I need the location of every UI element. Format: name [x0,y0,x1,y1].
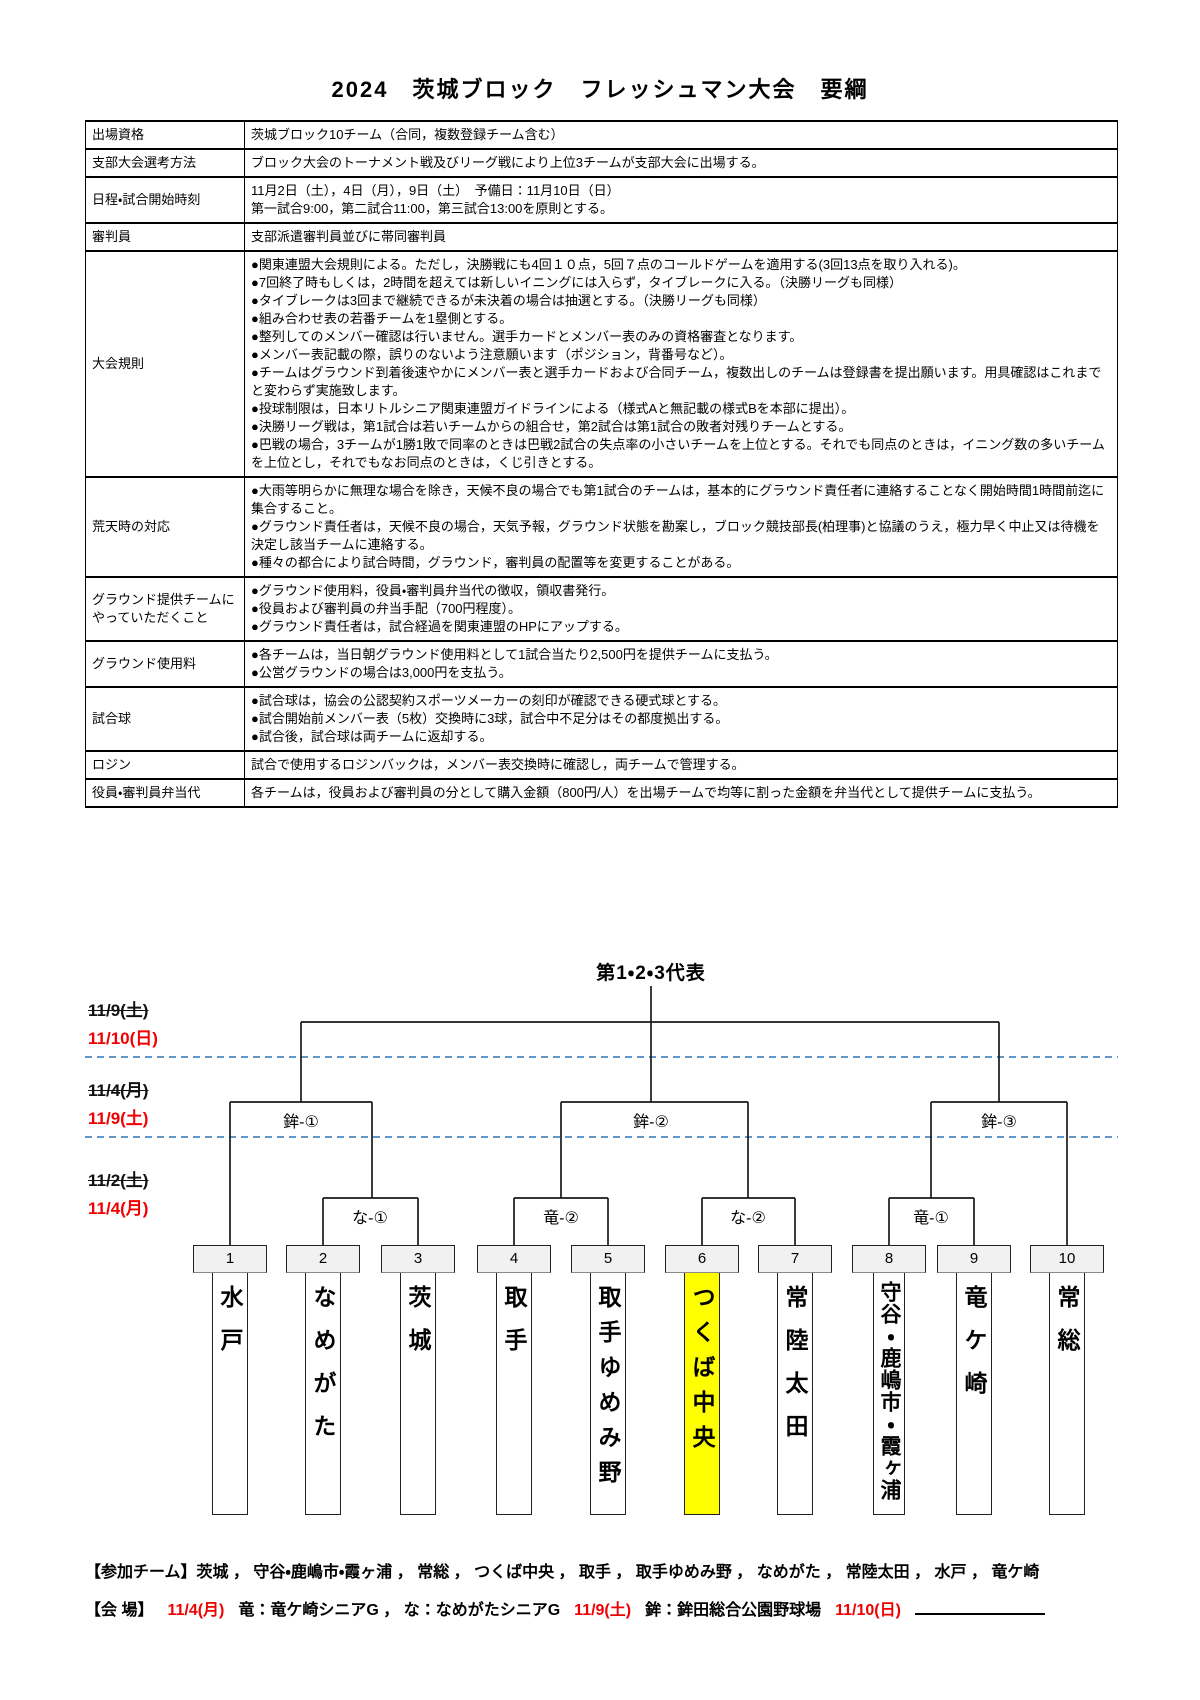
team-column-9: 9竜ケ崎 [937,1245,1011,1515]
row-content: 11月2日（土），4日（月），9日（土） 予備日：11月10日（日）第一試合9:… [245,177,1118,223]
row-label: グラウンド使用料 [86,641,245,687]
row-label: 役員・審判員弁当代 [86,779,245,807]
team-column-3: 3茨城 [381,1245,455,1515]
team-number: 7 [758,1245,832,1273]
row-label: グラウンド提供チームにやっていただくこと [86,577,245,641]
team-column-4: 4取手 [477,1245,551,1515]
page-title: 2024 茨城ブロック フレッシュマン大会 要綱 [0,72,1200,104]
row-label: 審判員 [86,223,245,251]
row-content: ●各チームは，当日朝グラウンド使用料として1試合当たり2,500円を提供チームに… [245,641,1118,687]
row-label: 試合球 [86,687,245,751]
venue-blank-line [915,1599,1045,1615]
rules-table: 出場資格茨城ブロック10チーム（合同，複数登録チーム含む）支部大会選考方法ブロッ… [85,120,1118,808]
row-content: ●関東連盟大会規則による。ただし，決勝戦にも4回１０点，5回７点のコールドゲーム… [245,251,1118,477]
round-date-new: 11/9(土) [88,1104,148,1129]
row-label: 荒天時の対応 [86,477,245,577]
team-column-5: 5取手ゆめみ野 [571,1245,645,1515]
row-content: 支部派遣審判員並びに帯同審判員 [245,223,1118,251]
round-date-old: 11/2(土) [88,1166,148,1191]
round-date-new: 11/4(月) [88,1194,148,1219]
table-row: グラウンド提供チームにやっていただくこと●グラウンド使用料，役員・審判員弁当代の… [86,577,1118,641]
team-column-7: 7常陸太田 [758,1245,832,1515]
venues-line: 【会 場】11/4(月)竜：竜ケ崎シニアG ， な：なめがたシニアG11/9(土… [85,1596,1165,1620]
table-row: グラウンド使用料●各チームは，当日朝グラウンド使用料として1試合当たり2,500… [86,641,1118,687]
team-number: 9 [937,1245,1011,1273]
row-label: 支部大会選考方法 [86,149,245,177]
participants-text: 茨城 ， 守谷・鹿嶋市・霞ヶ浦 ， 常総 ， つくば中央 ， 取手 ， 取手ゆめ… [197,1564,1040,1581]
team-number: 10 [1030,1245,1104,1273]
team-name: 取手ゆめみ野 [590,1273,626,1515]
row-content: 茨城ブロック10チーム（合同，複数登録チーム含む） [245,121,1118,149]
team-name: 守谷・鹿嶋市・霞ヶ浦 [873,1273,905,1515]
row-content: 各チームは，役員および審判員の分として購入金額（800円/人）を出場チームで均等… [245,779,1118,807]
row-content: 試合で使用するロジンバックは，メンバー表交換時に確認し，両チームで管理する。 [245,751,1118,779]
content-line: 各チームは，役員および審判員の分として購入金額（800円/人）を出場チームで均等… [251,784,1111,802]
table-row: 試合球●試合球は，協会の公認契約スポーツメーカーの刻印が確認できる硬式球とする。… [86,687,1118,751]
content-line: ●メンバー表記載の際，誤りのないよう注意願います（ポジション，背番号など）。 [251,346,1111,364]
participants-line: 【参加チーム】茨城 ， 守谷・鹿嶋市・霞ヶ浦 ， 常総 ， つくば中央 ， 取手… [85,1558,1165,1582]
table-row: ロジン試合で使用するロジンバックは，メンバー表交換時に確認し，両チームで管理する… [86,751,1118,779]
team-column-1: 1水戸 [193,1245,267,1515]
venue-parts: 11/4(月)竜：竜ケ崎シニアG ， な：なめがたシニアG11/9(土)鉾：鉾田… [167,1602,1058,1619]
row-content: ●グラウンド使用料，役員・審判員弁当代の徴収，領収書発行。●役員および審判員の弁… [245,577,1118,641]
row-content: ●大雨等明らかに無理な場合を除き，天候不良の場合でも第1試合のチームは，基本的に… [245,477,1118,577]
content-line: ●各チームは，当日朝グラウンド使用料として1試合当たり2,500円を提供チームに… [251,646,1111,664]
team-number: 6 [665,1245,739,1273]
content-line: ●関東連盟大会規則による。ただし，決勝戦にも4回１０点，5回７点のコールドゲーム… [251,256,1111,274]
tournament-bracket: 第1・2・3代表 11/9(土)11/10(日)11/4(月)11/9(土)11… [0,940,1200,1640]
venues-label: 【会 場】 [85,1602,153,1619]
match-label-round1: 竜-① [886,1204,976,1228]
content-line: ●試合開始前メンバー表（5枚）交換時に3球，試合中不足分はその都度拠出する。 [251,710,1111,728]
team-number: 5 [571,1245,645,1273]
team-column-2: 2なめがた [286,1245,360,1515]
table-row: 支部大会選考方法ブロック大会のトーナメント戦及びリーグ戦により上位3チームが支部… [86,149,1118,177]
content-line: ●決勝リーグ戦は，第1試合は若いチームからの組合せ，第2試合は第1試合の敗者対残… [251,418,1111,436]
document-page: 2024 茨城ブロック フレッシュマン大会 要綱 出場資格茨城ブロック10チーム… [0,0,1200,1700]
content-line: ●タイブレークは3回まで継続できるが未決着の場合は抽選とする。（決勝リーグも同様… [251,292,1111,310]
team-name: 竜ケ崎 [956,1273,992,1515]
content-line: 試合で使用するロジンバックは，メンバー表交換時に確認し，両チームで管理する。 [251,756,1111,774]
team-name: 常陸太田 [777,1273,813,1515]
table-row: 大会規則●関東連盟大会規則による。ただし，決勝戦にも4回１０点，5回７点のコール… [86,251,1118,477]
match-label-round1: な-① [325,1204,415,1228]
row-content: ブロック大会のトーナメント戦及びリーグ戦により上位3チームが支部大会に出場する。 [245,149,1118,177]
team-name: 水戸 [212,1273,248,1515]
content-line: 11月2日（土），4日（月），9日（土） 予備日：11月10日（日） [251,182,1111,200]
team-name: 取手 [496,1273,532,1515]
content-line: ●巴戦の場合，3チームが1勝1敗で同率のときは巴戦2試合の失点率の小さいチームを… [251,436,1111,472]
row-content: ●試合球は，協会の公認契約スポーツメーカーの刻印が確認できる硬式球とする。●試合… [245,687,1118,751]
team-number: 8 [852,1245,926,1273]
content-line: ●グラウンド責任者は，天候不良の場合，天気予報，グラウンド状態を勘案し，ブロック… [251,518,1111,554]
table-row: 出場資格茨城ブロック10チーム（合同，複数登録チーム含む） [86,121,1118,149]
content-line: 茨城ブロック10チーム（合同，複数登録チーム含む） [251,126,1111,144]
content-line: ●公営グラウンドの場合は3,000円を支払う。 [251,664,1111,682]
venue-name: 鉾：鉾田総合公園野球場 [645,1602,821,1619]
round-date-old: 11/9(土) [88,996,148,1021]
final-representatives-label: 第1・2・3代表 [501,958,801,985]
row-label: 大会規則 [86,251,245,477]
venue-date: 11/4(月) [167,1602,224,1619]
table-row: 審判員支部派遣審判員並びに帯同審判員 [86,223,1118,251]
row-label: 日程・試合開始時刻 [86,177,245,223]
content-line: ブロック大会のトーナメント戦及びリーグ戦により上位3チームが支部大会に出場する。 [251,154,1111,172]
content-line: 第一試合9:00，第二試合11:00，第三試合13:00を原則とする。 [251,200,1111,218]
content-line: ●グラウンド使用料，役員・審判員弁当代の徴収，領収書発行。 [251,582,1111,600]
venue-date: 11/9(土) [574,1602,631,1619]
team-name: 茨城 [400,1273,436,1515]
match-label-round1: な-② [703,1204,793,1228]
content-line: ●役員および審判員の弁当手配（700円程度）。 [251,600,1111,618]
row-label: ロジン [86,751,245,779]
match-label-round2: 鉾-② [606,1108,696,1132]
content-line: ●7回終了時もしくは，2時間を超えては新しいイニングには入らず，タイブレークに入… [251,274,1111,292]
team-name: 常総 [1049,1273,1085,1515]
team-column-8: 8守谷・鹿嶋市・霞ヶ浦 [852,1245,926,1515]
match-label-round2: 鉾-① [256,1108,346,1132]
content-line: ●グラウンド責任者は，試合経過を関東連盟のHPにアップする。 [251,618,1111,636]
rules-table-body: 出場資格茨城ブロック10チーム（合同，複数登録チーム含む）支部大会選考方法ブロッ… [86,121,1118,807]
round-date-old: 11/4(月) [88,1076,148,1101]
team-name: なめがた [305,1273,341,1515]
content-line: ●整列してのメンバー確認は行いません。選手カードとメンバー表のみの資格審査となり… [251,328,1111,346]
content-line: 支部派遣審判員並びに帯同審判員 [251,228,1111,246]
team-number: 2 [286,1245,360,1273]
team-number: 4 [477,1245,551,1273]
content-line: ●試合後，試合球は両チームに返却する。 [251,728,1111,746]
match-label-round1: 竜-② [516,1204,606,1228]
table-row: 役員・審判員弁当代各チームは，役員および審判員の分として購入金額（800円/人）… [86,779,1118,807]
content-line: ●投球制限は，日本リトルシニア関東連盟ガイドラインによる（様式Aと無記載の様式B… [251,400,1111,418]
match-label-round2: 鉾-③ [954,1108,1044,1132]
table-row: 荒天時の対応●大雨等明らかに無理な場合を除き，天候不良の場合でも第1試合のチーム… [86,477,1118,577]
venue-date: 11/10(日) [835,1602,901,1619]
content-line: ●試合球は，協会の公認契約スポーツメーカーの刻印が確認できる硬式球とする。 [251,692,1111,710]
row-label: 出場資格 [86,121,245,149]
venue-name: 竜：竜ケ崎シニアG ， な：なめがたシニアG [238,1602,560,1619]
table-row: 日程・試合開始時刻11月2日（土），4日（月），9日（土） 予備日：11月10日… [86,177,1118,223]
content-line: ●大雨等明らかに無理な場合を除き，天候不良の場合でも第1試合のチームは，基本的に… [251,482,1111,518]
content-line: ●組み合わせ表の若番チームを1塁側とする。 [251,310,1111,328]
content-line: ●チームはグラウンド到着後速やかにメンバー表と選手カードおよび合同チーム，複数出… [251,364,1111,400]
team-number: 1 [193,1245,267,1273]
team-number: 3 [381,1245,455,1273]
team-column-6: 6つくば中央 [665,1245,739,1515]
team-name: つくば中央 [684,1273,720,1515]
content-line: ●種々の都合により試合時間，グラウンド，審判員の配置等を変更することがある。 [251,554,1111,572]
team-column-10: 10常総 [1030,1245,1104,1515]
participants-label: 【参加チーム】 [85,1564,197,1581]
round-date-new: 11/10(日) [88,1024,158,1049]
